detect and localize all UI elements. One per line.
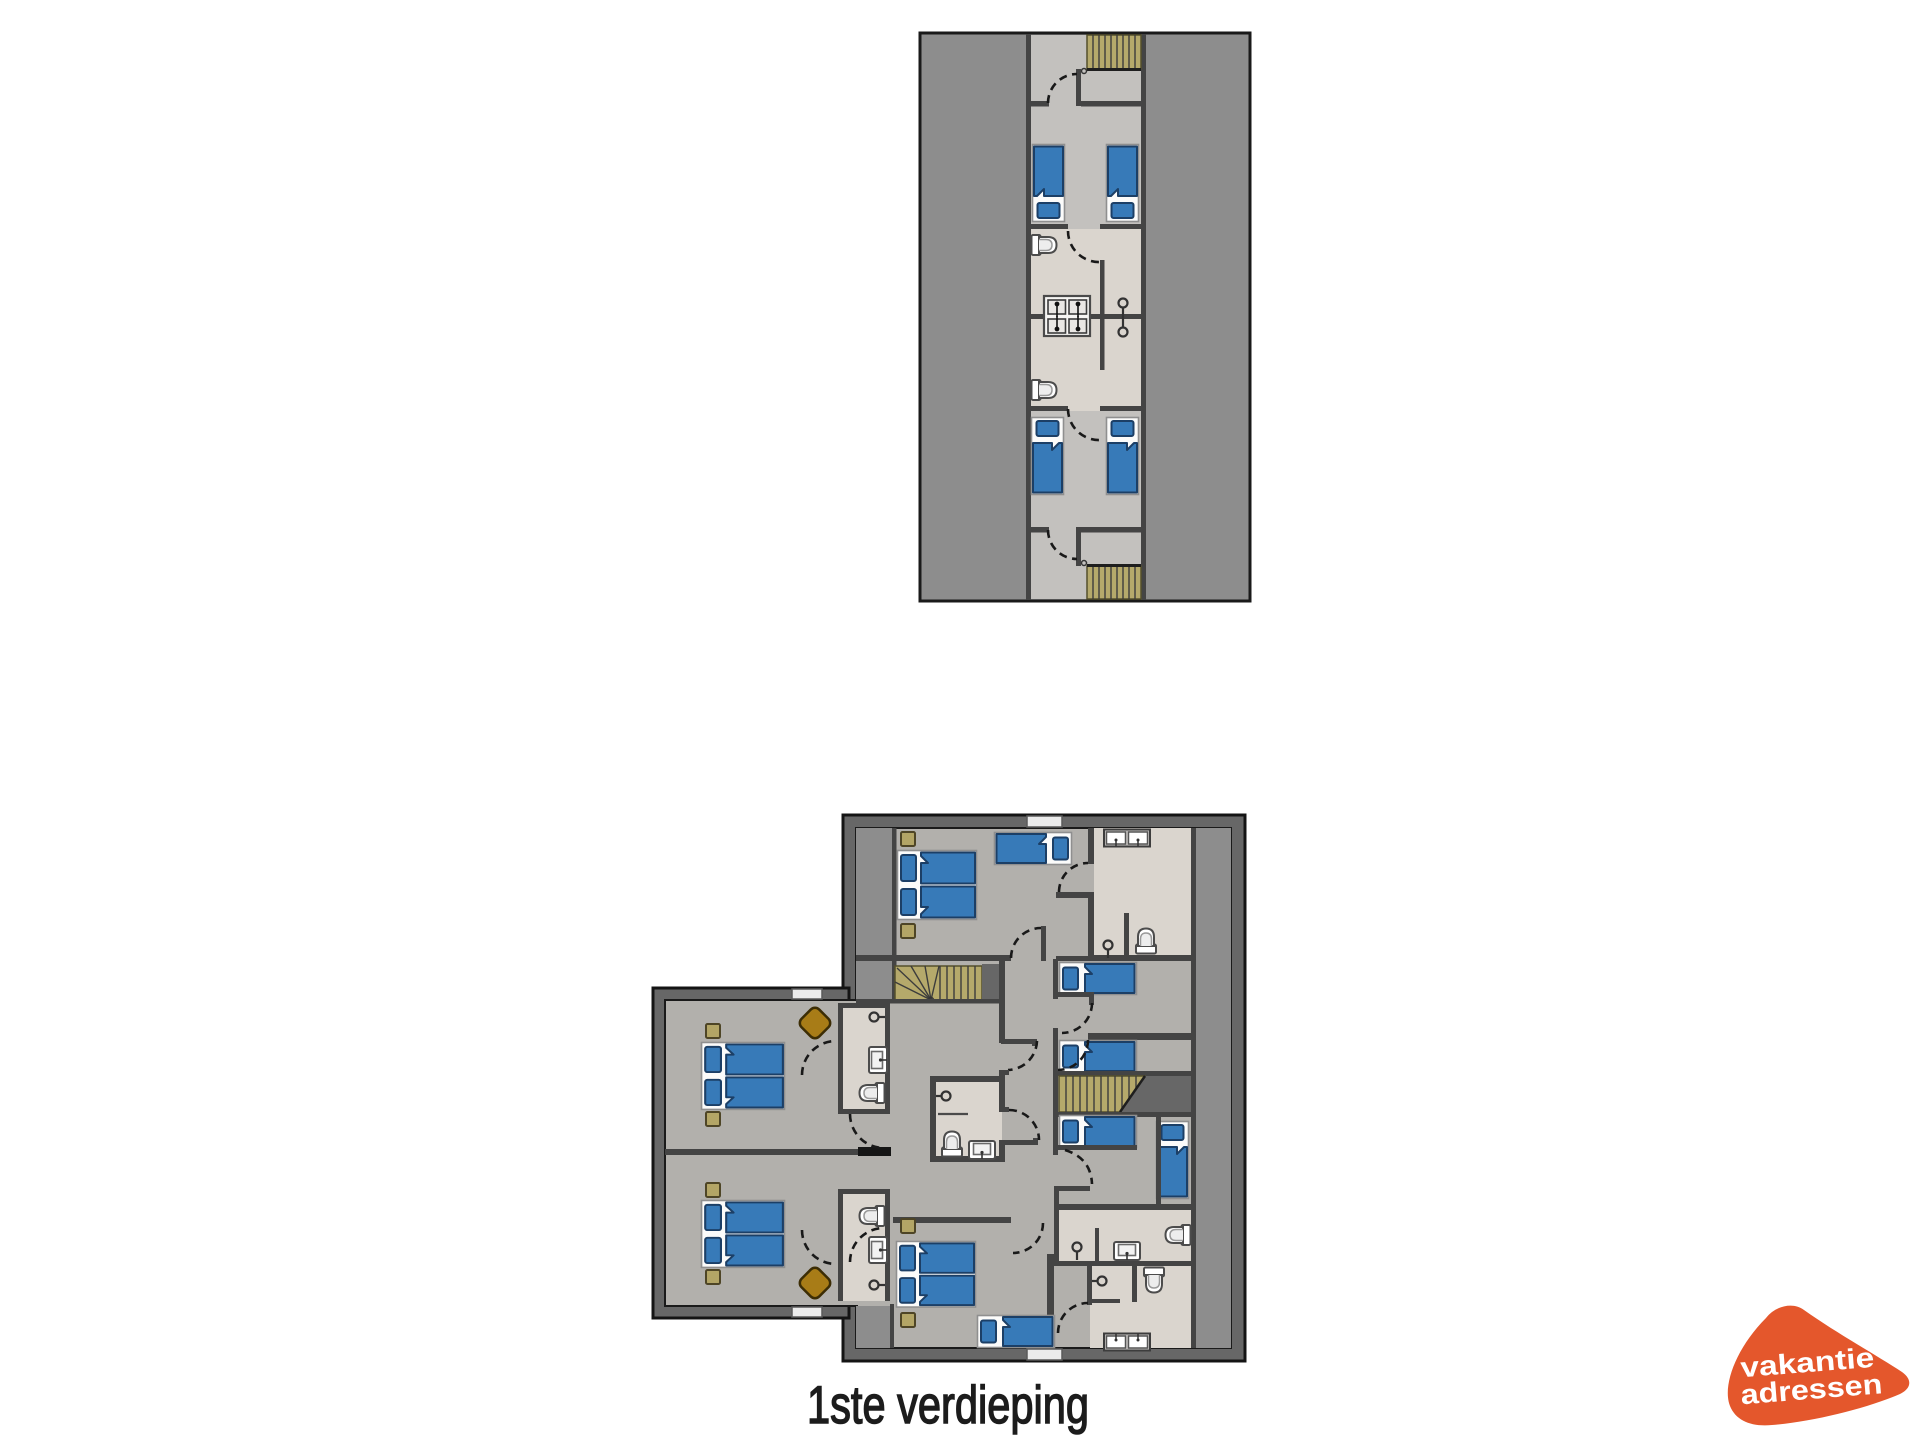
svg-text:1ste verdieping: 1ste verdieping bbox=[807, 1376, 1089, 1435]
